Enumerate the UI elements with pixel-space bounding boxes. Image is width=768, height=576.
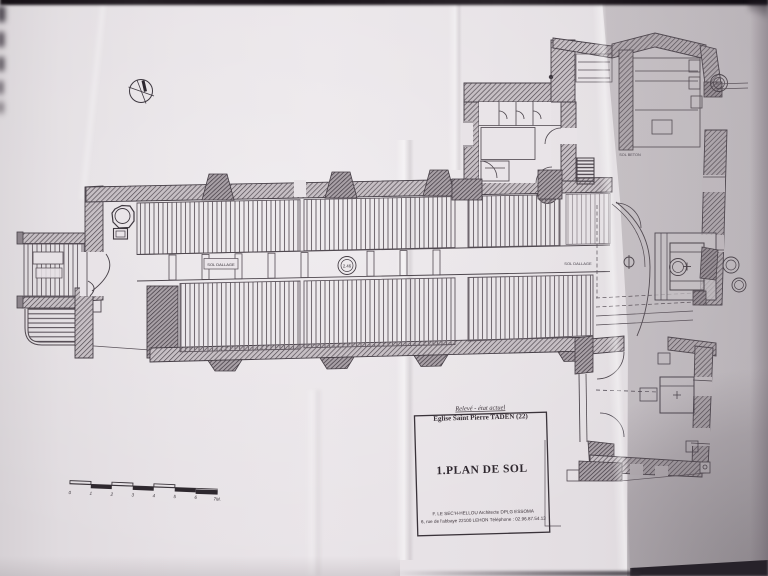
svg-text:1.PLAN DE SOL: 1.PLAN DE SOL <box>436 463 527 478</box>
svg-text:4: 4 <box>152 493 155 498</box>
svg-text:0: 0 <box>68 490 71 495</box>
svg-text:SOL BETON: SOL BETON <box>619 153 641 157</box>
svg-text:SOL DALLAGE: SOL DALLAGE <box>207 262 235 267</box>
svg-text:Relevé - état actuel: Relevé - état actuel <box>454 404 505 412</box>
svg-text:6, rue de l'abbaye 22100 LEHON: 6, rue de l'abbaye 22100 LEHON Téléphone… <box>421 516 546 524</box>
svg-text:SOL DALLAGE: SOL DALLAGE <box>564 261 592 266</box>
svg-text:7M.: 7M. <box>213 497 221 502</box>
svg-text:2.46: 2.46 <box>343 264 352 269</box>
svg-text:F. LE SEC'H-HELLOU Architecte: F. LE SEC'H-HELLOU Architecte DPLG ESSOM… <box>432 509 534 517</box>
svg-text:3: 3 <box>131 492 134 497</box>
svg-text:5: 5 <box>173 494 176 499</box>
svg-text:6: 6 <box>194 495 197 500</box>
svg-text:2: 2 <box>109 492 113 497</box>
svg-text:1: 1 <box>89 491 92 496</box>
